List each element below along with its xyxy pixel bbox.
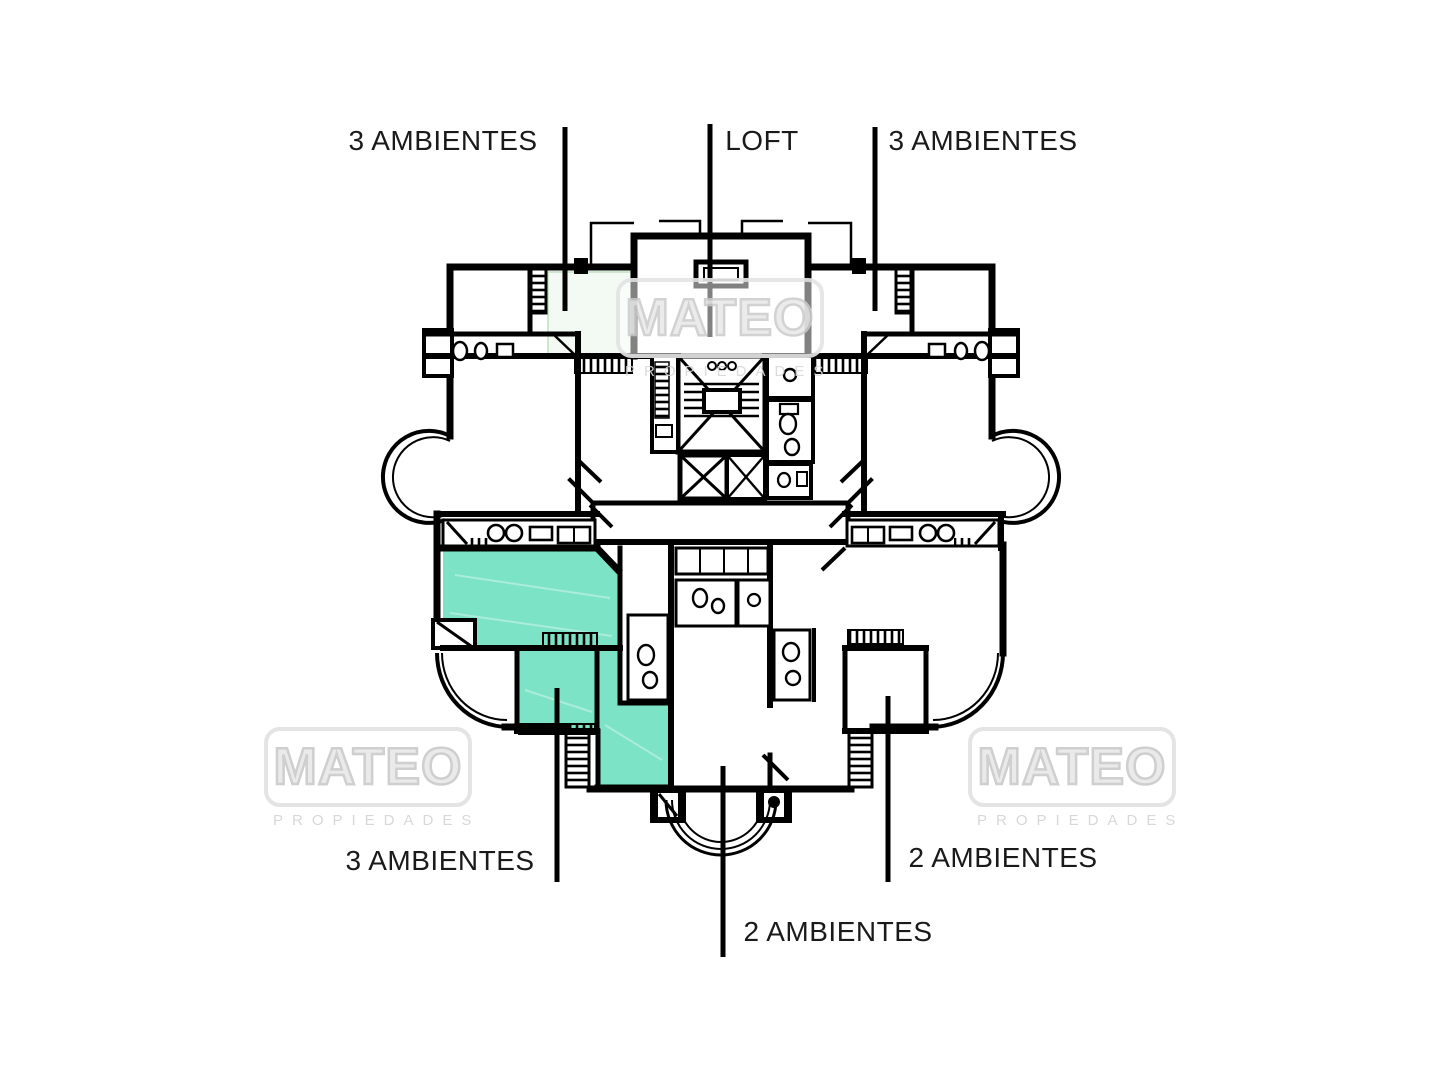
bay-window-left xyxy=(383,431,450,523)
label-unit-bottom-left: 3 AMBIENTES xyxy=(345,845,534,877)
bay-window-right xyxy=(992,431,1059,523)
watermark-brand: MATEO xyxy=(274,741,463,793)
rounded-corner-right xyxy=(931,653,1003,727)
label-unit-top-right: 3 AMBIENTES xyxy=(888,125,1077,157)
kitchen-left xyxy=(443,520,595,546)
balcony-band-left xyxy=(566,733,589,787)
wardrobe-left xyxy=(530,267,546,313)
watermark-box: MATEO xyxy=(616,278,824,358)
window-niche-bottom-left xyxy=(433,620,475,648)
balcony-band-right xyxy=(849,732,872,787)
watermark-center: MATEO PROPIEDADES xyxy=(616,278,824,380)
watermark-bottom-right: MATEO PROPIEDADES xyxy=(968,727,1176,829)
center-unit-bathrooms xyxy=(628,548,810,700)
watermark-brand: MATEO xyxy=(978,741,1167,793)
kitchen-right xyxy=(847,520,999,546)
label-unit-top-center: LOFT xyxy=(725,125,799,157)
watermark-brand: MATEO xyxy=(626,292,815,344)
watermark-subtitle: PROPIEDADES xyxy=(616,363,824,380)
label-unit-bottom-center: 2 AMBIENTES xyxy=(743,916,932,948)
watermark-box: MATEO xyxy=(264,727,472,807)
watermark-subtitle: PROPIEDADES xyxy=(264,812,472,829)
label-unit-top-left: 3 AMBIENTES xyxy=(348,125,537,157)
label-unit-bottom-right: 2 AMBIENTES xyxy=(908,842,1097,874)
window-sill-teal-living xyxy=(543,633,597,647)
window-sill-right-bedroom xyxy=(848,630,903,644)
watermark-box: MATEO xyxy=(968,727,1176,807)
watermark-bottom-left: MATEO PROPIEDADES xyxy=(264,727,472,829)
elevator xyxy=(680,455,765,499)
floor-plan-drawing xyxy=(0,0,1440,1080)
watermark-subtitle: PROPIEDADES xyxy=(968,812,1176,829)
floor-plan-page: MATEO PROPIEDADES MATEO PROPIEDADES MATE… xyxy=(0,0,1440,1080)
rounded-corner-left xyxy=(437,653,509,727)
wardrobe-right xyxy=(896,267,912,313)
